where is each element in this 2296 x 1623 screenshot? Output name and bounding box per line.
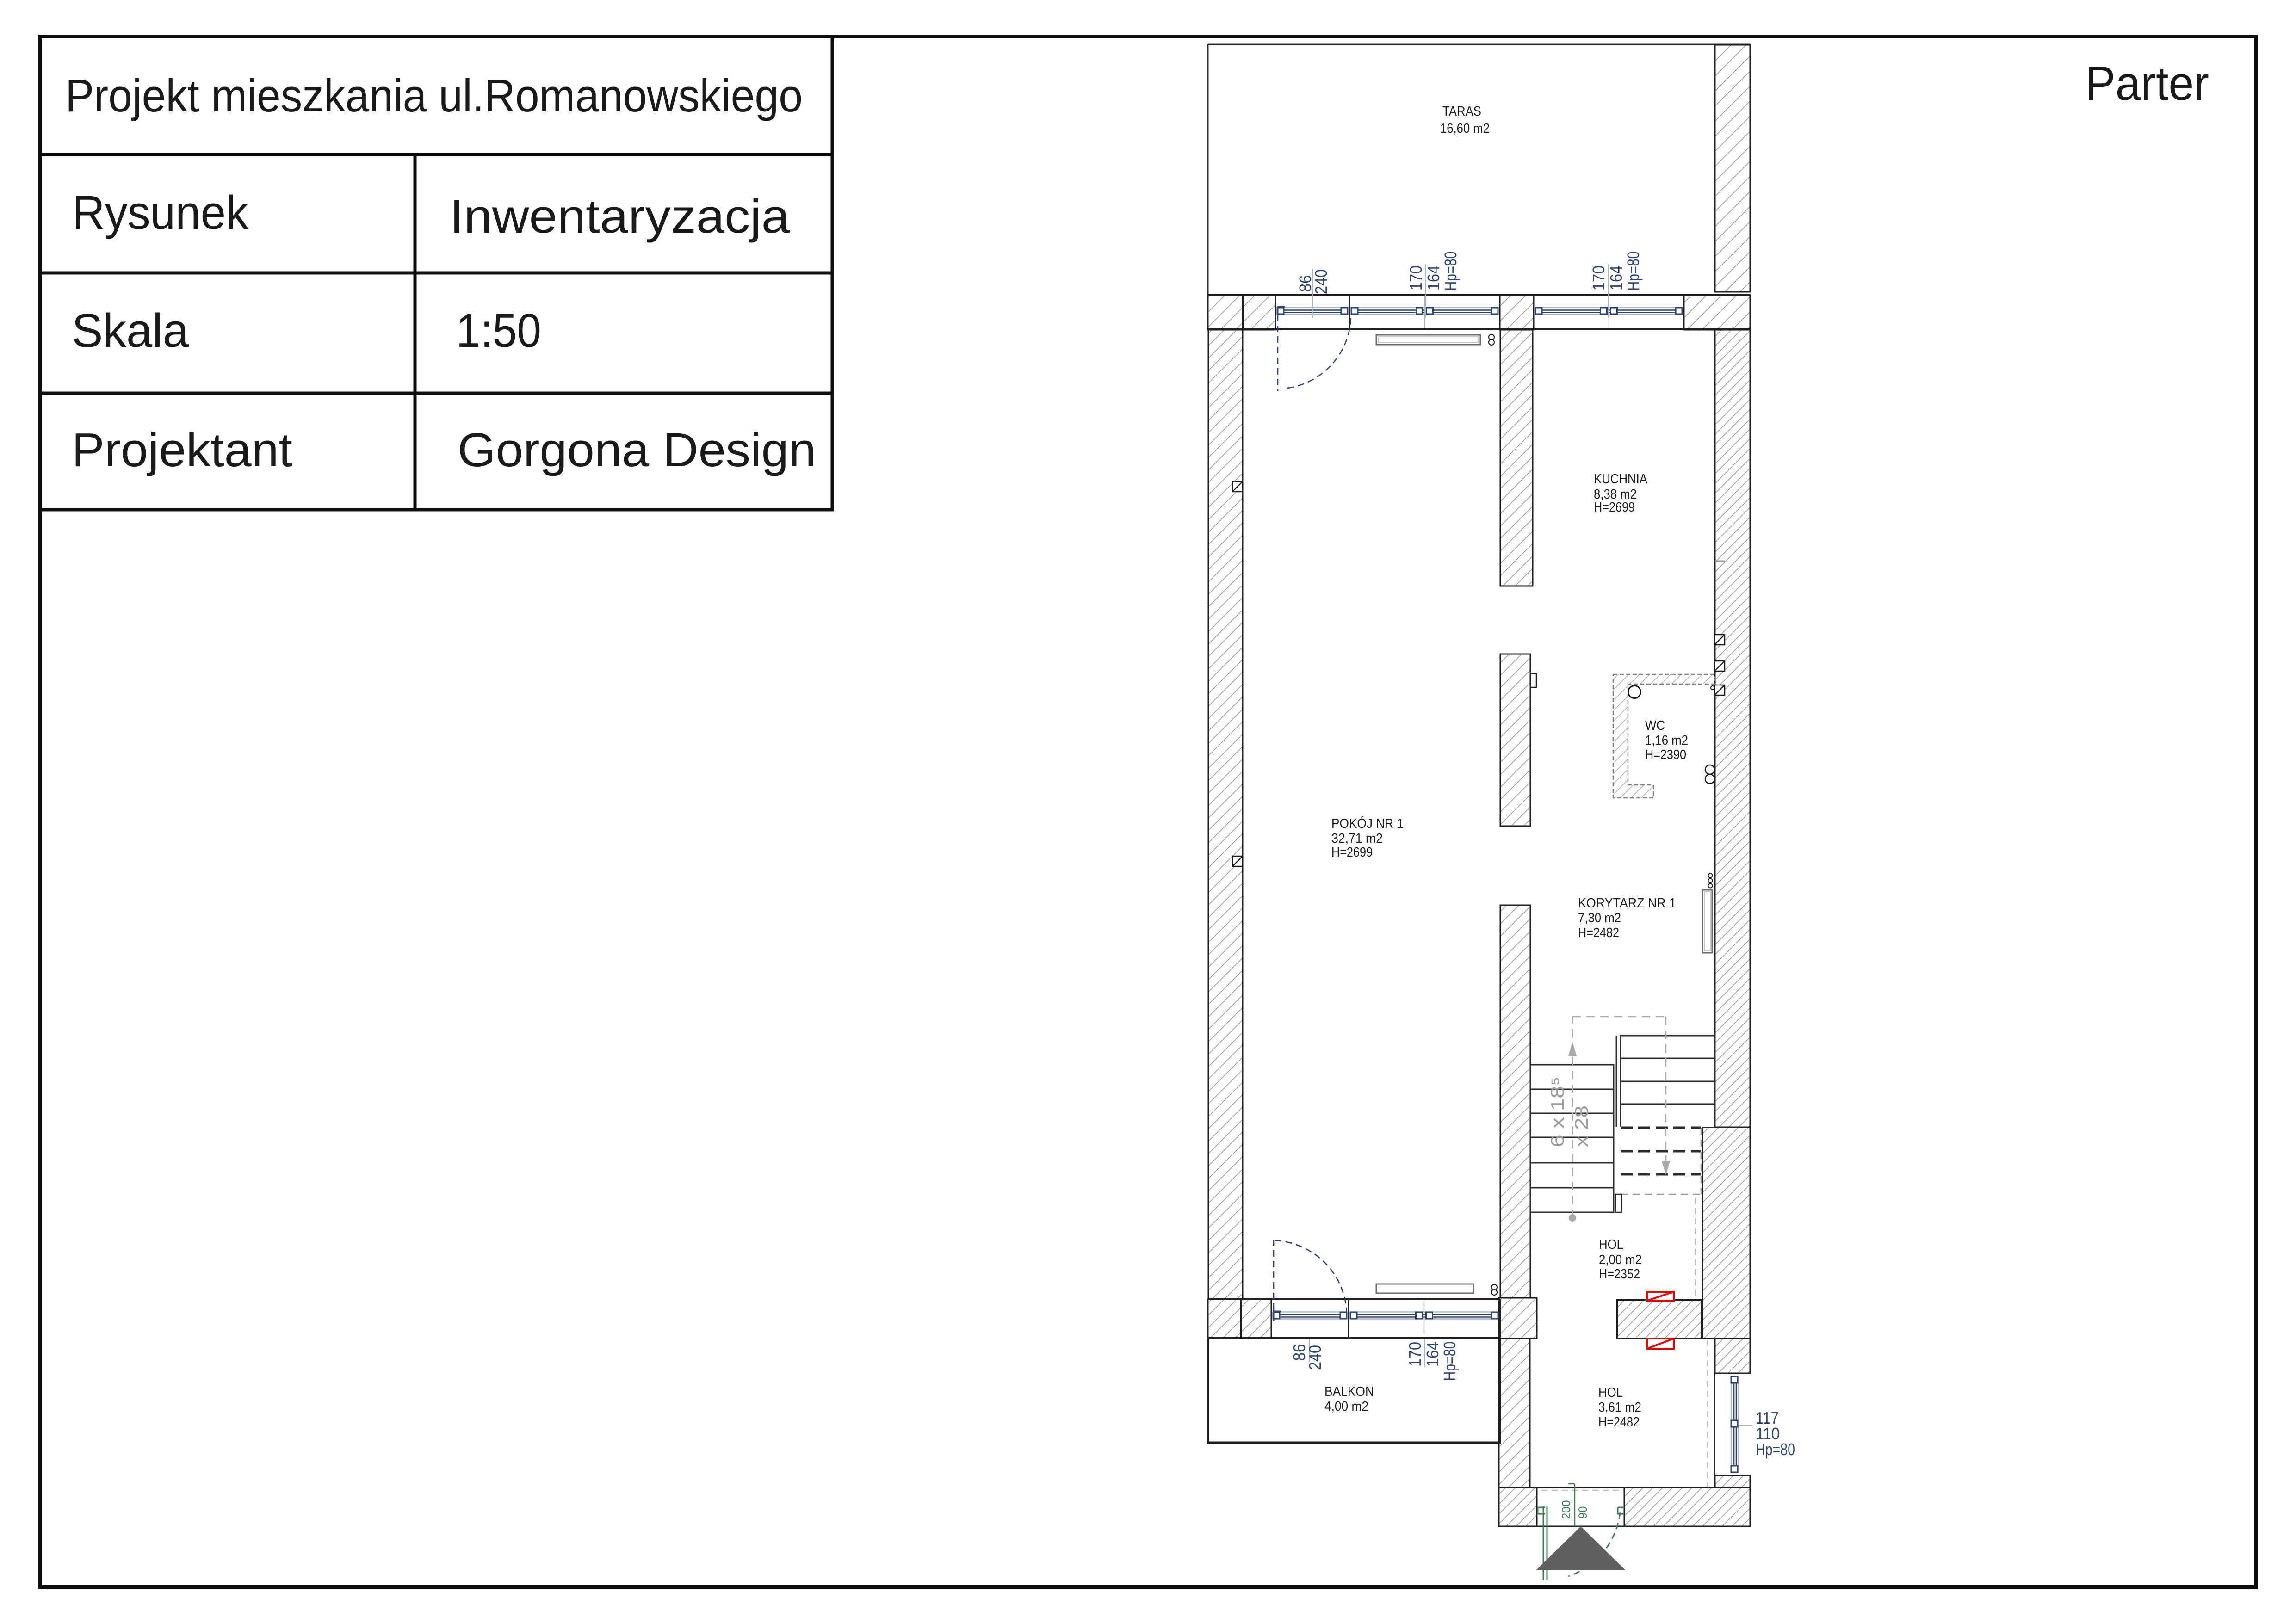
svg-text:BALKON: BALKON [1324,1384,1374,1399]
svg-text:HOL: HOL [1598,1385,1623,1400]
svg-text:Hp=80: Hp=80 [1624,252,1643,291]
svg-text:Parter: Parter [2085,57,2209,111]
svg-text:16,60 m2: 16,60 m2 [1440,121,1490,136]
svg-text:164: 164 [1607,265,1626,290]
svg-text:H=2352: H=2352 [1599,1267,1640,1282]
svg-text:1:50: 1:50 [456,304,541,357]
svg-text:HOL: HOL [1599,1237,1623,1252]
svg-text:7,30 m2: 7,30 m2 [1578,911,1621,926]
svg-text:Projekt mieszkania ul.Romanows: Projekt mieszkania ul.Romanowskiego [65,70,803,121]
svg-text:H=2482: H=2482 [1578,926,1619,940]
svg-text:H=2699: H=2699 [1594,500,1635,515]
svg-text:Gorgona Design: Gorgona Design [458,423,816,476]
svg-text:H=2699: H=2699 [1331,845,1373,860]
svg-text:32,71 m2: 32,71 m2 [1331,831,1383,846]
svg-text:Hp=80: Hp=80 [1440,1342,1459,1381]
svg-text:TARAS: TARAS [1442,104,1481,119]
svg-text:KORYTARZ NR 1: KORYTARZ NR 1 [1578,896,1676,911]
svg-text:Hp=80: Hp=80 [1756,1440,1795,1459]
svg-text:Inwentaryzacja: Inwentaryzacja [450,190,790,243]
svg-text:WC: WC [1645,718,1665,733]
svg-text:164: 164 [1423,1342,1442,1367]
svg-text:KUCHNIA: KUCHNIA [1594,472,1648,487]
svg-text:170: 170 [1405,1342,1424,1367]
svg-text:H=2390: H=2390 [1645,747,1686,762]
svg-text:Rysunek: Rysunek [72,186,248,239]
svg-text:Hp=80: Hp=80 [1441,252,1460,291]
svg-text:POKÓJ NR 1: POKÓJ NR 1 [1331,816,1404,831]
svg-text:3,61 m2: 3,61 m2 [1598,1400,1641,1415]
svg-text:240: 240 [1306,1345,1324,1370]
svg-text:H=2482: H=2482 [1598,1415,1640,1430]
svg-text:Projektant: Projektant [72,423,292,476]
svg-text:x 28: x 28 [1572,1105,1592,1147]
svg-text:240: 240 [1312,269,1331,294]
svg-text:200: 200 [1560,1500,1573,1519]
svg-text:6 x 18⁵: 6 x 18⁵ [1547,1077,1568,1148]
svg-text:90: 90 [1577,1506,1590,1519]
svg-text:Skala: Skala [72,304,189,357]
svg-text:2,00 m2: 2,00 m2 [1599,1253,1642,1267]
svg-text:164: 164 [1424,265,1443,290]
svg-text:170: 170 [1406,265,1425,290]
svg-text:1,16 m2: 1,16 m2 [1645,733,1688,748]
svg-text:170: 170 [1589,265,1608,290]
svg-text:4,00 m2: 4,00 m2 [1324,1399,1368,1414]
